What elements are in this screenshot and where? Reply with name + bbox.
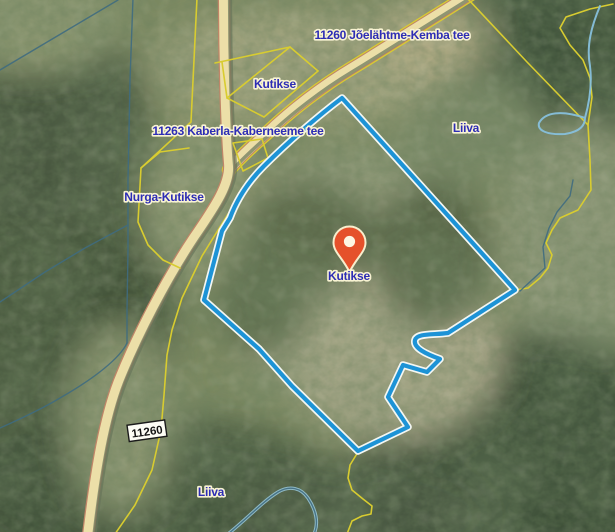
label-road-kaberla-kaberneeme: 11263 Kaberla-Kaberneeme tee bbox=[152, 124, 324, 138]
label-nurga-kutikse: Nurga-Kutikse bbox=[124, 190, 204, 204]
label-marker-kutikse: Kutikse bbox=[328, 269, 370, 283]
label-road-joelahtme-kemba: 11260 Jõelähtme-Kemba tee bbox=[314, 28, 470, 42]
marker-pin-hole bbox=[344, 236, 355, 247]
label-liiva-right: Liiva bbox=[453, 121, 480, 135]
label-liiva-bottom: Liiva bbox=[198, 485, 225, 499]
label-kutikse-top: Kutikse bbox=[254, 77, 296, 91]
map-canvas[interactable]: 11260 Jõelähtme-Kemba tee Kutikse 11263 … bbox=[0, 0, 615, 532]
